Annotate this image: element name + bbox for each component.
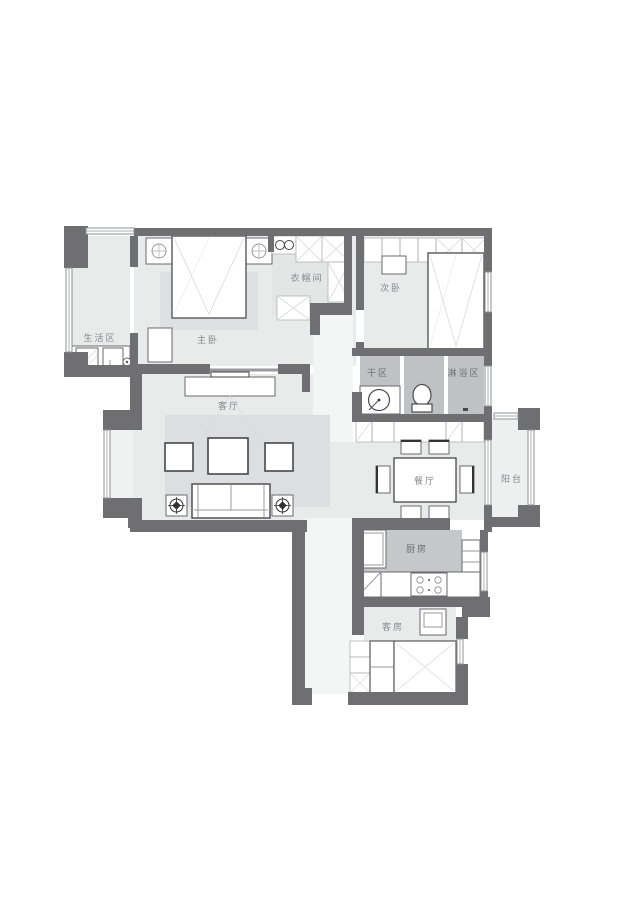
window (485, 366, 491, 406)
label-cloakroom: 衣帽间 (290, 272, 323, 283)
dresser (148, 328, 172, 362)
glass-partition (400, 356, 404, 414)
tall-cabinet (462, 540, 480, 572)
hall-cabinet-row (356, 420, 484, 442)
label-dining-room: 餐厅 (414, 475, 436, 486)
label-laundry: 生活区 (83, 332, 116, 343)
label-guest-room: 客房 (382, 621, 404, 632)
master-bed (172, 236, 246, 318)
bay-window-floor (110, 430, 133, 498)
glass-partition (444, 356, 448, 414)
floor-plan-page: 生活区 主卧 衣帽间 次卧 干区 淋浴区 客厅 餐厅 阳台 厨房 客房 (0, 0, 640, 905)
armchair-left (165, 443, 193, 471)
label-balcony: 阳台 (501, 473, 523, 484)
toilet-icon (413, 385, 431, 406)
second-bed (428, 253, 484, 350)
label-dry-area: 干区 (367, 368, 389, 378)
label-master-bedroom: 主卧 (197, 334, 219, 345)
window (494, 413, 518, 419)
tv-console (185, 377, 275, 396)
window (528, 430, 534, 505)
balcony-floor (492, 418, 528, 518)
window (485, 272, 491, 312)
window (86, 228, 134, 234)
label-second-bedroom: 次卧 (380, 282, 402, 293)
side-table-left (166, 495, 187, 516)
window (66, 268, 72, 352)
balcony-slider (485, 440, 491, 505)
stove-icon (411, 573, 447, 596)
cabinet (350, 641, 370, 657)
shower-drain-icon (463, 408, 468, 411)
bay-window (104, 430, 110, 498)
coffee-table (208, 438, 248, 474)
side-table-right (272, 495, 293, 516)
floor-plan-canvas: 生活区 主卧 衣帽间 次卧 干区 淋浴区 客厅 餐厅 阳台 厨房 客房 (0, 0, 640, 905)
label-kitchen: 厨房 (406, 543, 428, 554)
window (481, 552, 487, 591)
bedside-shelf (382, 256, 406, 274)
tv-icon (211, 372, 249, 377)
cabinet (350, 657, 370, 673)
armchair-right (265, 443, 293, 471)
label-living-room: 客厅 (218, 400, 240, 411)
label-shower: 淋浴区 (447, 367, 480, 378)
corridor-floor (305, 518, 353, 694)
window (457, 639, 463, 664)
